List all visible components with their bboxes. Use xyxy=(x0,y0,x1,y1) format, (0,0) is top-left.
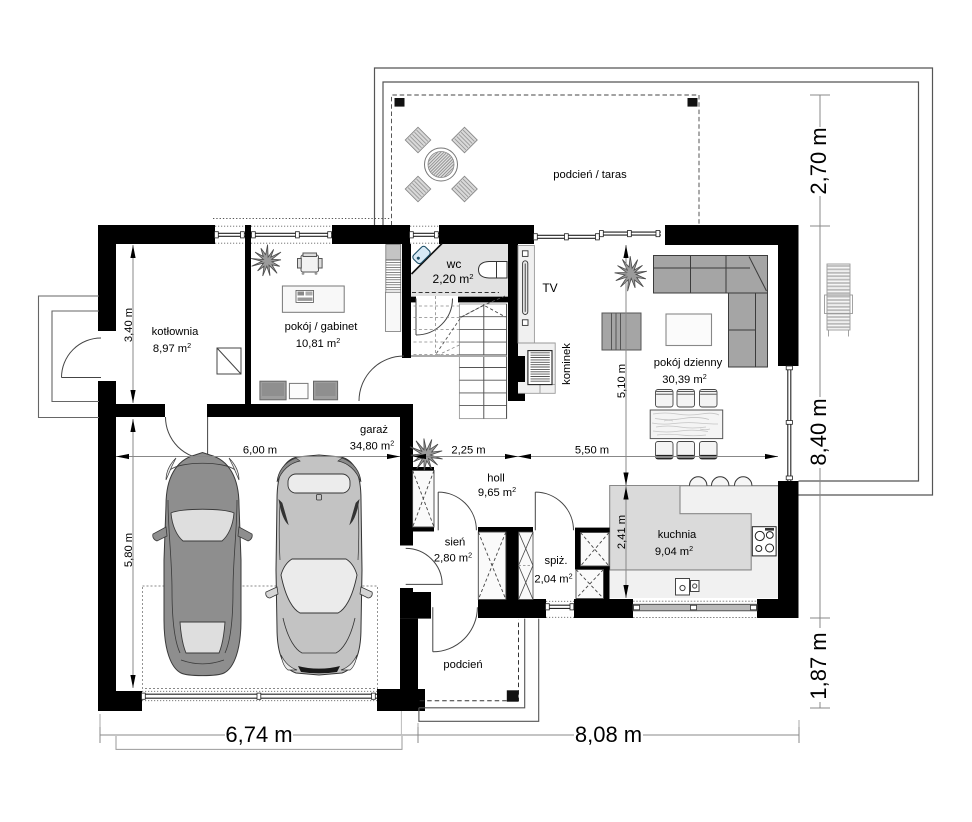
svg-text:holl: holl xyxy=(487,473,504,485)
svg-text:10,81 m2: 10,81 m2 xyxy=(296,336,340,350)
svg-text:kotłownia: kotłownia xyxy=(152,326,199,338)
svg-text:8,08 m: 8,08 m xyxy=(575,722,642,747)
svg-text:8,97 m2: 8,97 m2 xyxy=(153,341,191,355)
svg-text:3,40 m: 3,40 m xyxy=(123,308,135,342)
svg-text:spiż.: spiż. xyxy=(544,555,567,567)
svg-text:podcień: podcień xyxy=(443,659,482,671)
svg-text:6,74 m: 6,74 m xyxy=(225,722,292,747)
svg-text:2,25 m: 2,25 m xyxy=(451,445,485,457)
svg-text:kuchnia: kuchnia xyxy=(658,529,697,541)
svg-text:5,80 m: 5,80 m xyxy=(123,533,135,567)
svg-text:podcień / taras: podcień / taras xyxy=(553,169,627,181)
svg-text:wc: wc xyxy=(446,257,462,271)
svg-text:2,04 m2: 2,04 m2 xyxy=(534,572,572,586)
svg-text:5,10 m: 5,10 m xyxy=(616,364,628,398)
svg-text:1,87 m: 1,87 m xyxy=(806,632,831,699)
svg-text:34,80 m2: 34,80 m2 xyxy=(350,439,394,453)
svg-text:2,41 m: 2,41 m xyxy=(616,515,628,549)
svg-text:9,65 m2: 9,65 m2 xyxy=(478,485,516,499)
svg-text:kominek: kominek xyxy=(561,343,573,385)
svg-text:5,50 m: 5,50 m xyxy=(575,445,609,457)
svg-text:30,39 m2: 30,39 m2 xyxy=(662,372,706,386)
svg-text:pokój dzienny: pokój dzienny xyxy=(654,357,723,369)
svg-text:garaż: garaż xyxy=(360,424,388,436)
svg-text:6,00 m: 6,00 m xyxy=(243,445,277,457)
svg-text:2,70 m: 2,70 m xyxy=(806,127,831,194)
svg-text:pokój / gabinet: pokój / gabinet xyxy=(285,321,359,333)
svg-text:2,20 m2: 2,20 m2 xyxy=(433,272,474,286)
svg-text:8,40 m: 8,40 m xyxy=(806,398,831,465)
svg-text:2,80 m2: 2,80 m2 xyxy=(434,551,472,565)
svg-text:9,04 m2: 9,04 m2 xyxy=(655,544,693,558)
svg-text:sień: sień xyxy=(445,537,466,549)
svg-text:TV: TV xyxy=(542,281,557,295)
